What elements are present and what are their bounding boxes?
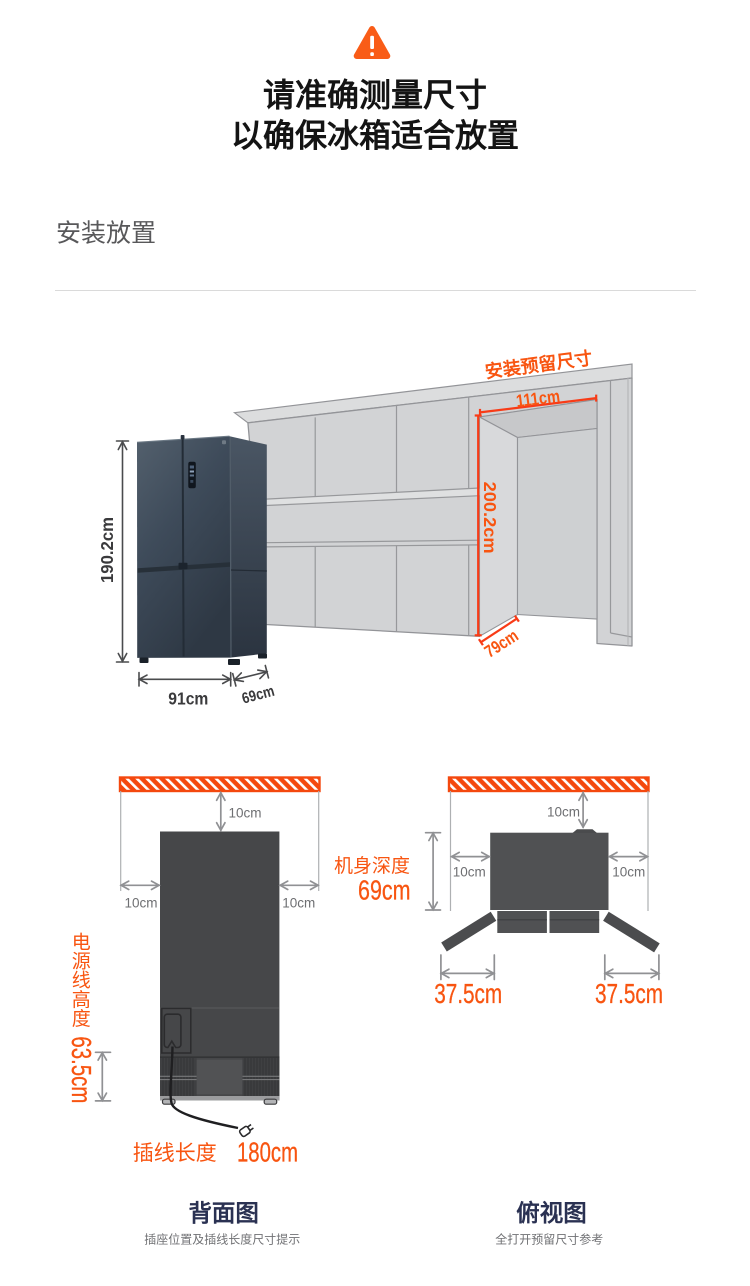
svg-text:91cm: 91cm — [168, 688, 208, 708]
svg-text:线: 线 — [72, 970, 91, 992]
svg-text:10cm: 10cm — [612, 863, 645, 879]
svg-text:10cm: 10cm — [282, 894, 315, 910]
svg-text:全打开预留尺寸参考: 全打开预留尺寸参考 — [495, 1232, 603, 1247]
svg-text:插线长度: 插线长度 — [133, 1142, 217, 1165]
svg-text:69cm: 69cm — [240, 683, 276, 708]
svg-text:180cm: 180cm — [237, 1136, 298, 1167]
svg-text:10cm: 10cm — [547, 804, 580, 820]
svg-text:37.5cm: 37.5cm — [595, 978, 663, 1009]
svg-text:插座位置及插线长度尺寸提示: 插座位置及插线长度尺寸提示 — [144, 1232, 300, 1247]
svg-text:电: 电 — [72, 931, 91, 953]
svg-text:200.2cm: 200.2cm — [480, 482, 500, 554]
svg-text:63.5cm: 63.5cm — [66, 1036, 97, 1103]
svg-text:度: 度 — [72, 1008, 91, 1030]
svg-text:俯视图: 俯视图 — [516, 1199, 587, 1226]
svg-text:安装放置: 安装放置 — [56, 220, 156, 248]
svg-text:69cm: 69cm — [358, 874, 411, 905]
svg-text:源: 源 — [72, 951, 91, 973]
svg-text:37.5cm: 37.5cm — [434, 978, 502, 1009]
svg-text:高: 高 — [72, 989, 91, 1011]
svg-text:10cm: 10cm — [125, 894, 158, 910]
svg-text:以确保冰箱适合放置: 以确保冰箱适合放置 — [231, 118, 519, 154]
svg-text:190.2cm: 190.2cm — [97, 517, 117, 583]
svg-text:10cm: 10cm — [453, 863, 486, 879]
svg-text:请准确测量尺寸: 请准确测量尺寸 — [263, 77, 487, 113]
svg-text:背面图: 背面图 — [188, 1200, 259, 1226]
svg-text:10cm: 10cm — [229, 805, 262, 821]
